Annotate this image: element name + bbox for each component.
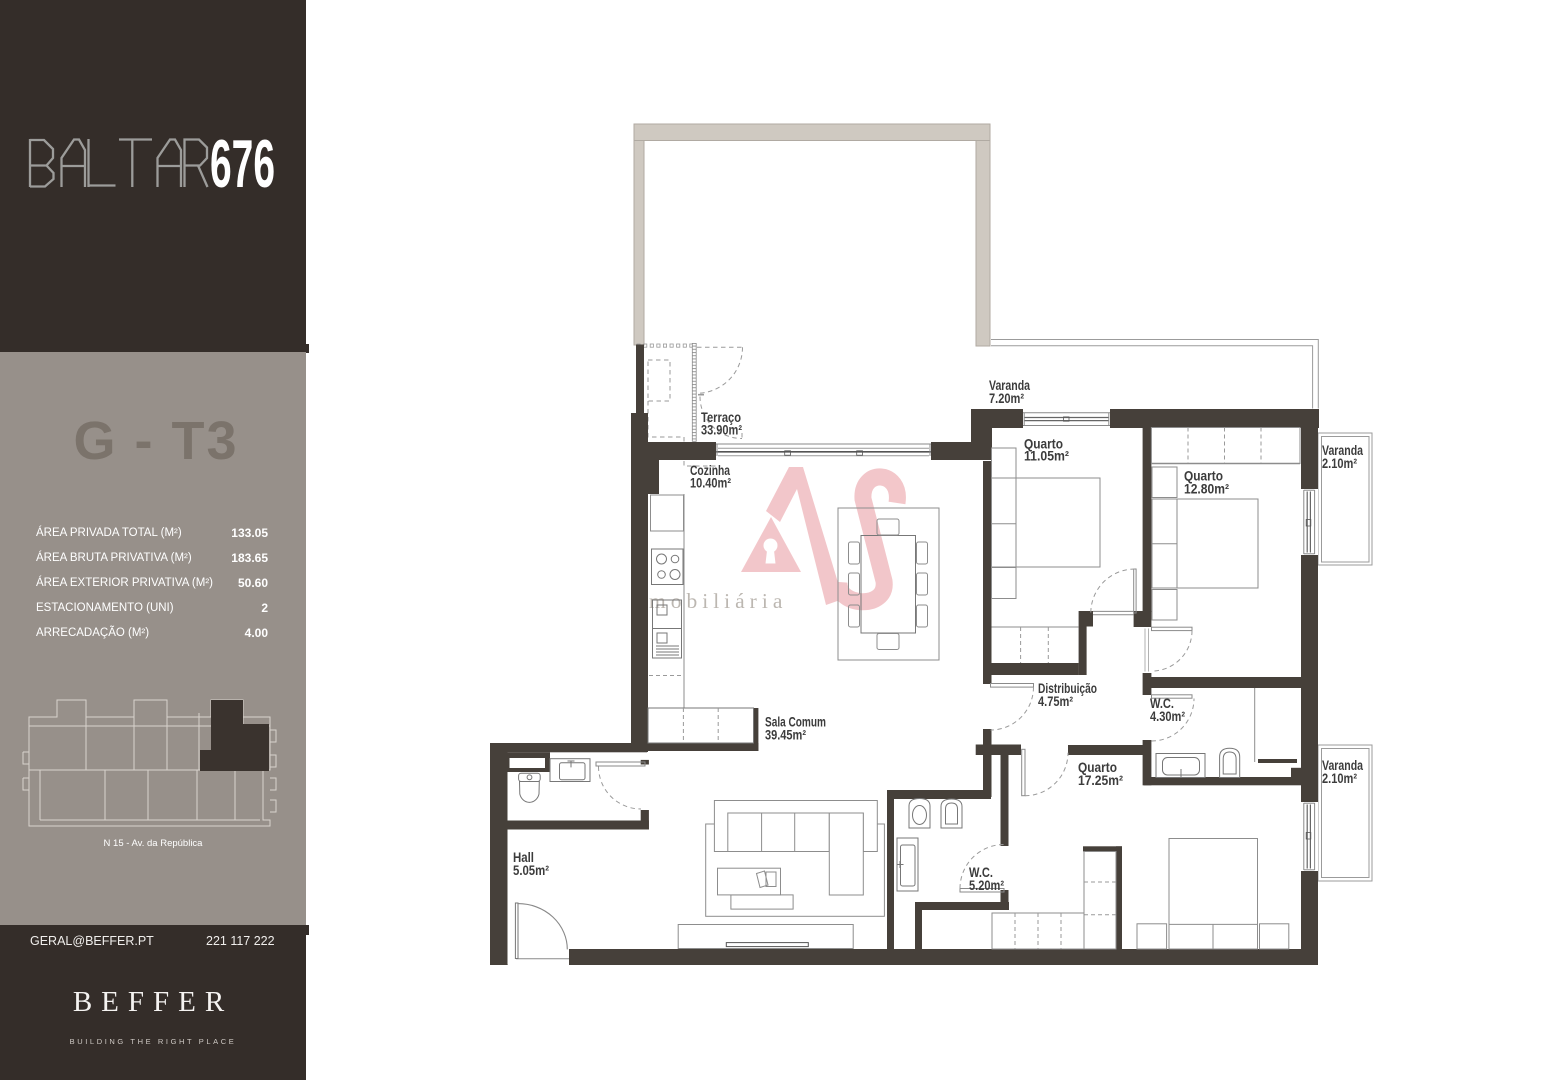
svg-text:4.30m²: 4.30m² (1150, 708, 1185, 724)
svg-text:39.45m²: 39.45m² (765, 727, 806, 743)
svg-text:10.40m²: 10.40m² (690, 475, 731, 491)
svg-text:2.10m²: 2.10m² (1322, 770, 1357, 786)
svg-text:12.80m²: 12.80m² (1184, 481, 1229, 497)
svg-text:4.75m²: 4.75m² (1038, 693, 1073, 709)
svg-text:5.05m²: 5.05m² (513, 862, 549, 878)
svg-text:mobiliária: mobiliária (649, 589, 787, 613)
svg-text:2.10m²: 2.10m² (1322, 455, 1357, 471)
svg-text:11.05m²: 11.05m² (1024, 448, 1069, 464)
svg-text:5.20m²: 5.20m² (969, 877, 1004, 893)
svg-text:33.90m²: 33.90m² (701, 422, 742, 438)
svg-text:7.20m²: 7.20m² (989, 390, 1024, 406)
svg-text:17.25m²: 17.25m² (1078, 772, 1123, 788)
